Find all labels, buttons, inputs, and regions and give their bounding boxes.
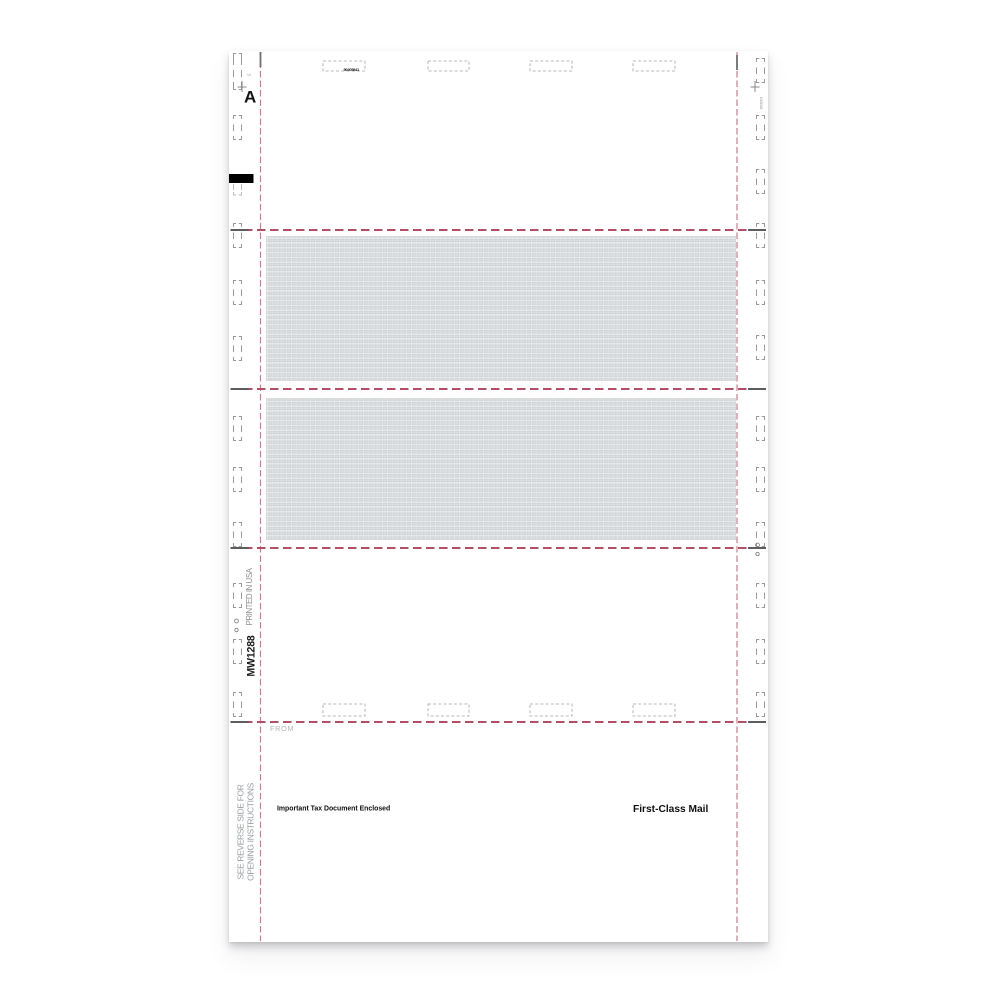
svg-text:90205841: 90205841 xyxy=(344,67,360,72)
svg-text:FROM: FROM xyxy=(270,724,294,733)
svg-text:A: A xyxy=(244,88,256,107)
svg-text:603003: 603003 xyxy=(760,97,764,109)
svg-text:14: 14 xyxy=(247,73,251,77)
svg-text:MW1288: MW1288 xyxy=(246,635,258,676)
svg-text:Important Tax Document Enclose: Important Tax Document Enclosed xyxy=(277,806,390,813)
svg-text:OPENING INSTRUCTIONS: OPENING INSTRUCTIONS xyxy=(246,782,256,880)
svg-text:PRINTED IN USA: PRINTED IN USA xyxy=(245,567,254,625)
svg-text:First-Class Mail: First-Class Mail xyxy=(633,804,708,815)
svg-text:SEE REVERSE SIDE FOR: SEE REVERSE SIDE FOR xyxy=(235,784,245,879)
